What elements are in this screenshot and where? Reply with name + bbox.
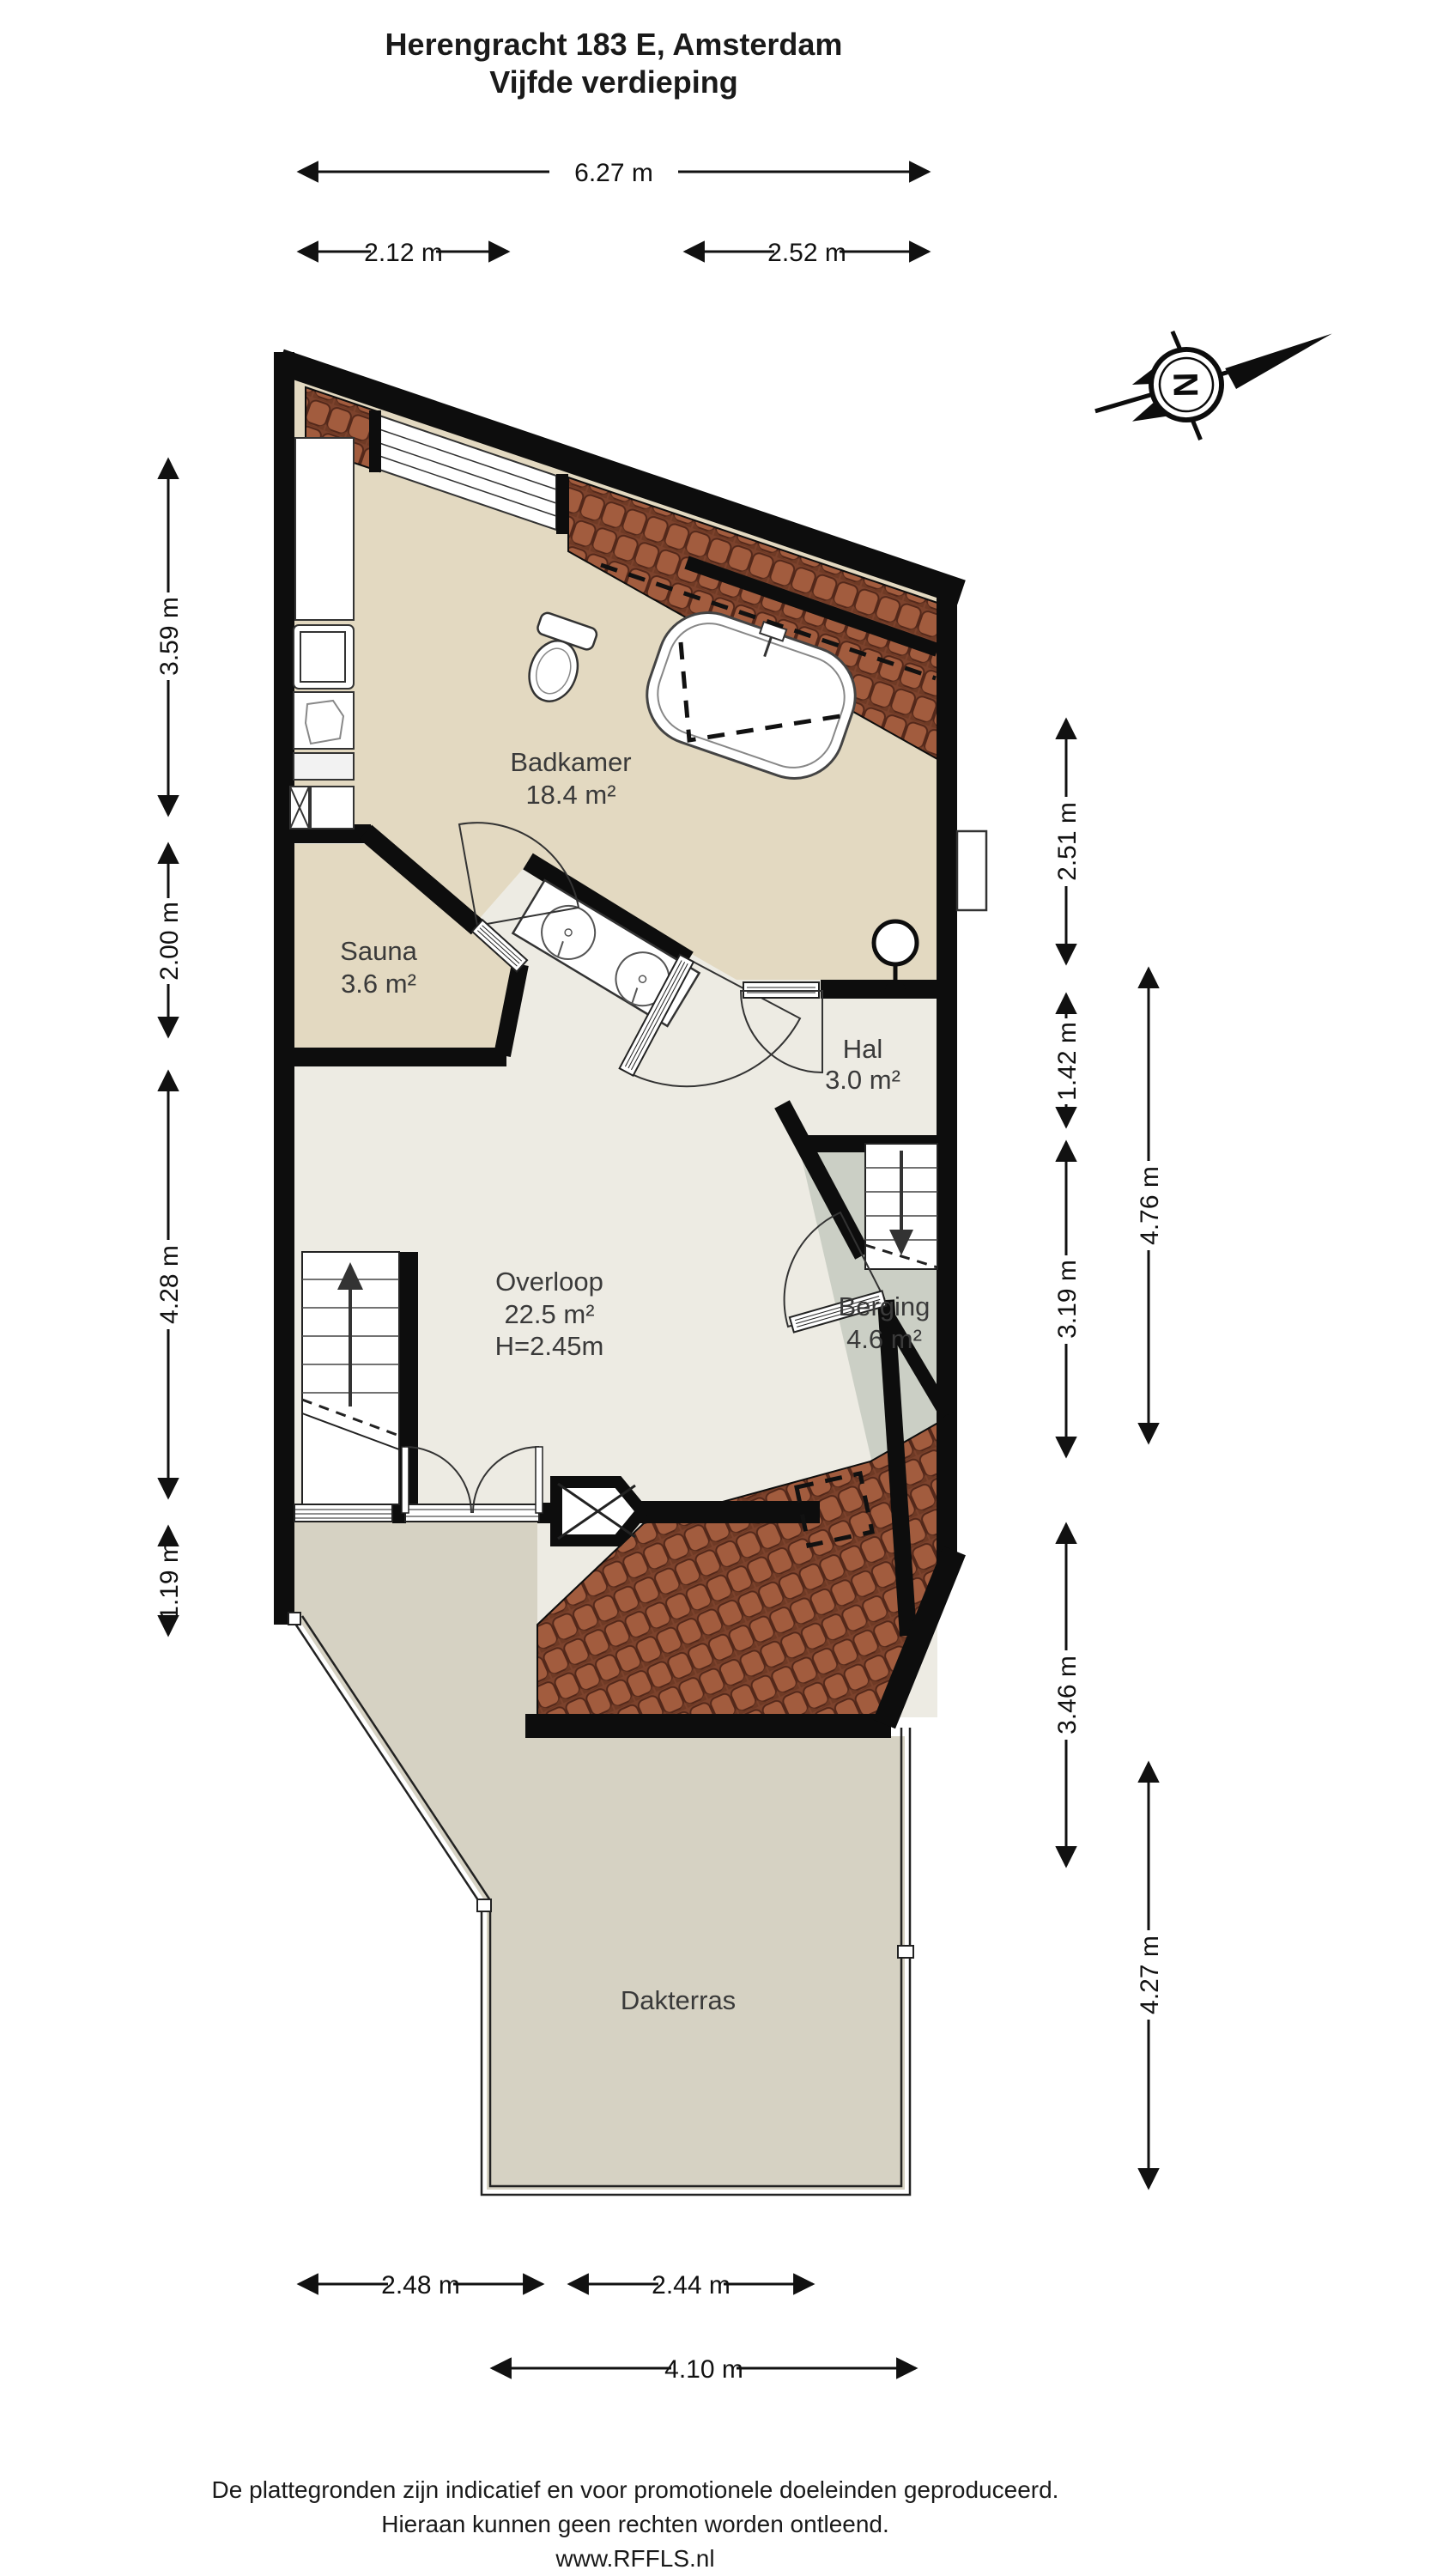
overloop-height: H=2.45m: [495, 1331, 604, 1361]
dim-top-total: 6.27 m: [574, 159, 653, 187]
wall-niche: [957, 831, 986, 910]
stairs-berging: [865, 1144, 937, 1269]
berging-label: Berging: [839, 1291, 931, 1321]
dormer-jamb-right: [556, 474, 568, 534]
overloop-area: 22.5 m²: [504, 1299, 594, 1329]
compass-north-icon: N: [1083, 301, 1348, 459]
dim-left-1: 3.59 m: [155, 597, 184, 676]
stairs-overloop: [302, 1252, 399, 1504]
dim-left-4: 1.19 m: [155, 1541, 184, 1620]
website-link: www.RFFLS.nl: [0, 2542, 1270, 2576]
dim-left-2: 2.00 m: [155, 902, 184, 981]
railing-post-2: [477, 1899, 491, 1911]
sauna-label: Sauna: [340, 936, 417, 966]
badkamer-area: 18.4 m²: [525, 780, 615, 810]
dim-right-outer-1: 4.76 m: [1136, 1166, 1164, 1245]
dim-top-right: 2.52 m: [767, 239, 846, 267]
floor-plan: Badkamer 18.4 m² Sauna 3.6 m² Hal 3.0 m²…: [0, 0, 1449, 2576]
disclaimer-line2: Hieraan kunnen geen rechten worden ontle…: [0, 2507, 1270, 2542]
dim-left-3: 4.28 m: [155, 1245, 184, 1324]
skylight: [556, 1482, 642, 1540]
dim-right-inner-1: 2.51 m: [1053, 802, 1082, 881]
dim-right-outer-2: 4.27 m: [1136, 1935, 1164, 2014]
cabinet-small: [311, 787, 354, 829]
overloop-label: Overloop: [495, 1267, 603, 1297]
washing-machine-door: [300, 632, 345, 682]
dim-top-left: 2.12 m: [364, 239, 443, 267]
wall-bottom-band-left: [640, 1501, 820, 1523]
dim-right-inner-2: 1.42 m: [1053, 1022, 1082, 1101]
dim-bottom-left: 2.48 m: [381, 2271, 460, 2300]
hal-area: 3.0 m²: [825, 1065, 900, 1095]
disclaimer-line1: De plattegronden zijn indicatief en voor…: [0, 2473, 1270, 2507]
dakterras-label: Dakterras: [621, 1985, 736, 2015]
railing-post-1: [288, 1613, 300, 1625]
wardrobe: [295, 438, 354, 620]
sink-cabinet: [294, 692, 354, 749]
compass-letter: N: [1167, 372, 1205, 398]
badkamer-label: Badkamer: [510, 747, 631, 777]
hal-label: Hal: [843, 1034, 883, 1064]
berging-area: 4.6 m²: [846, 1324, 922, 1354]
wall-bottom-band: [525, 1714, 891, 1738]
dim-right-inner-3: 3.19 m: [1053, 1260, 1082, 1339]
shelf: [294, 753, 354, 780]
lamp-base: [885, 981, 906, 989]
dim-right-inner-4: 3.46 m: [1053, 1656, 1082, 1735]
dormer-jamb-left: [369, 410, 381, 472]
dim-bottom-total: 4.10 m: [664, 2355, 743, 2384]
dim-bottom-right: 2.44 m: [652, 2271, 731, 2300]
disclaimer: De plattegronden zijn indicatief en voor…: [0, 2473, 1270, 2576]
railing-post-3: [898, 1946, 913, 1958]
sauna-area: 3.6 m²: [341, 969, 416, 999]
closet-column: [290, 438, 354, 829]
window-left: [294, 1504, 392, 1522]
